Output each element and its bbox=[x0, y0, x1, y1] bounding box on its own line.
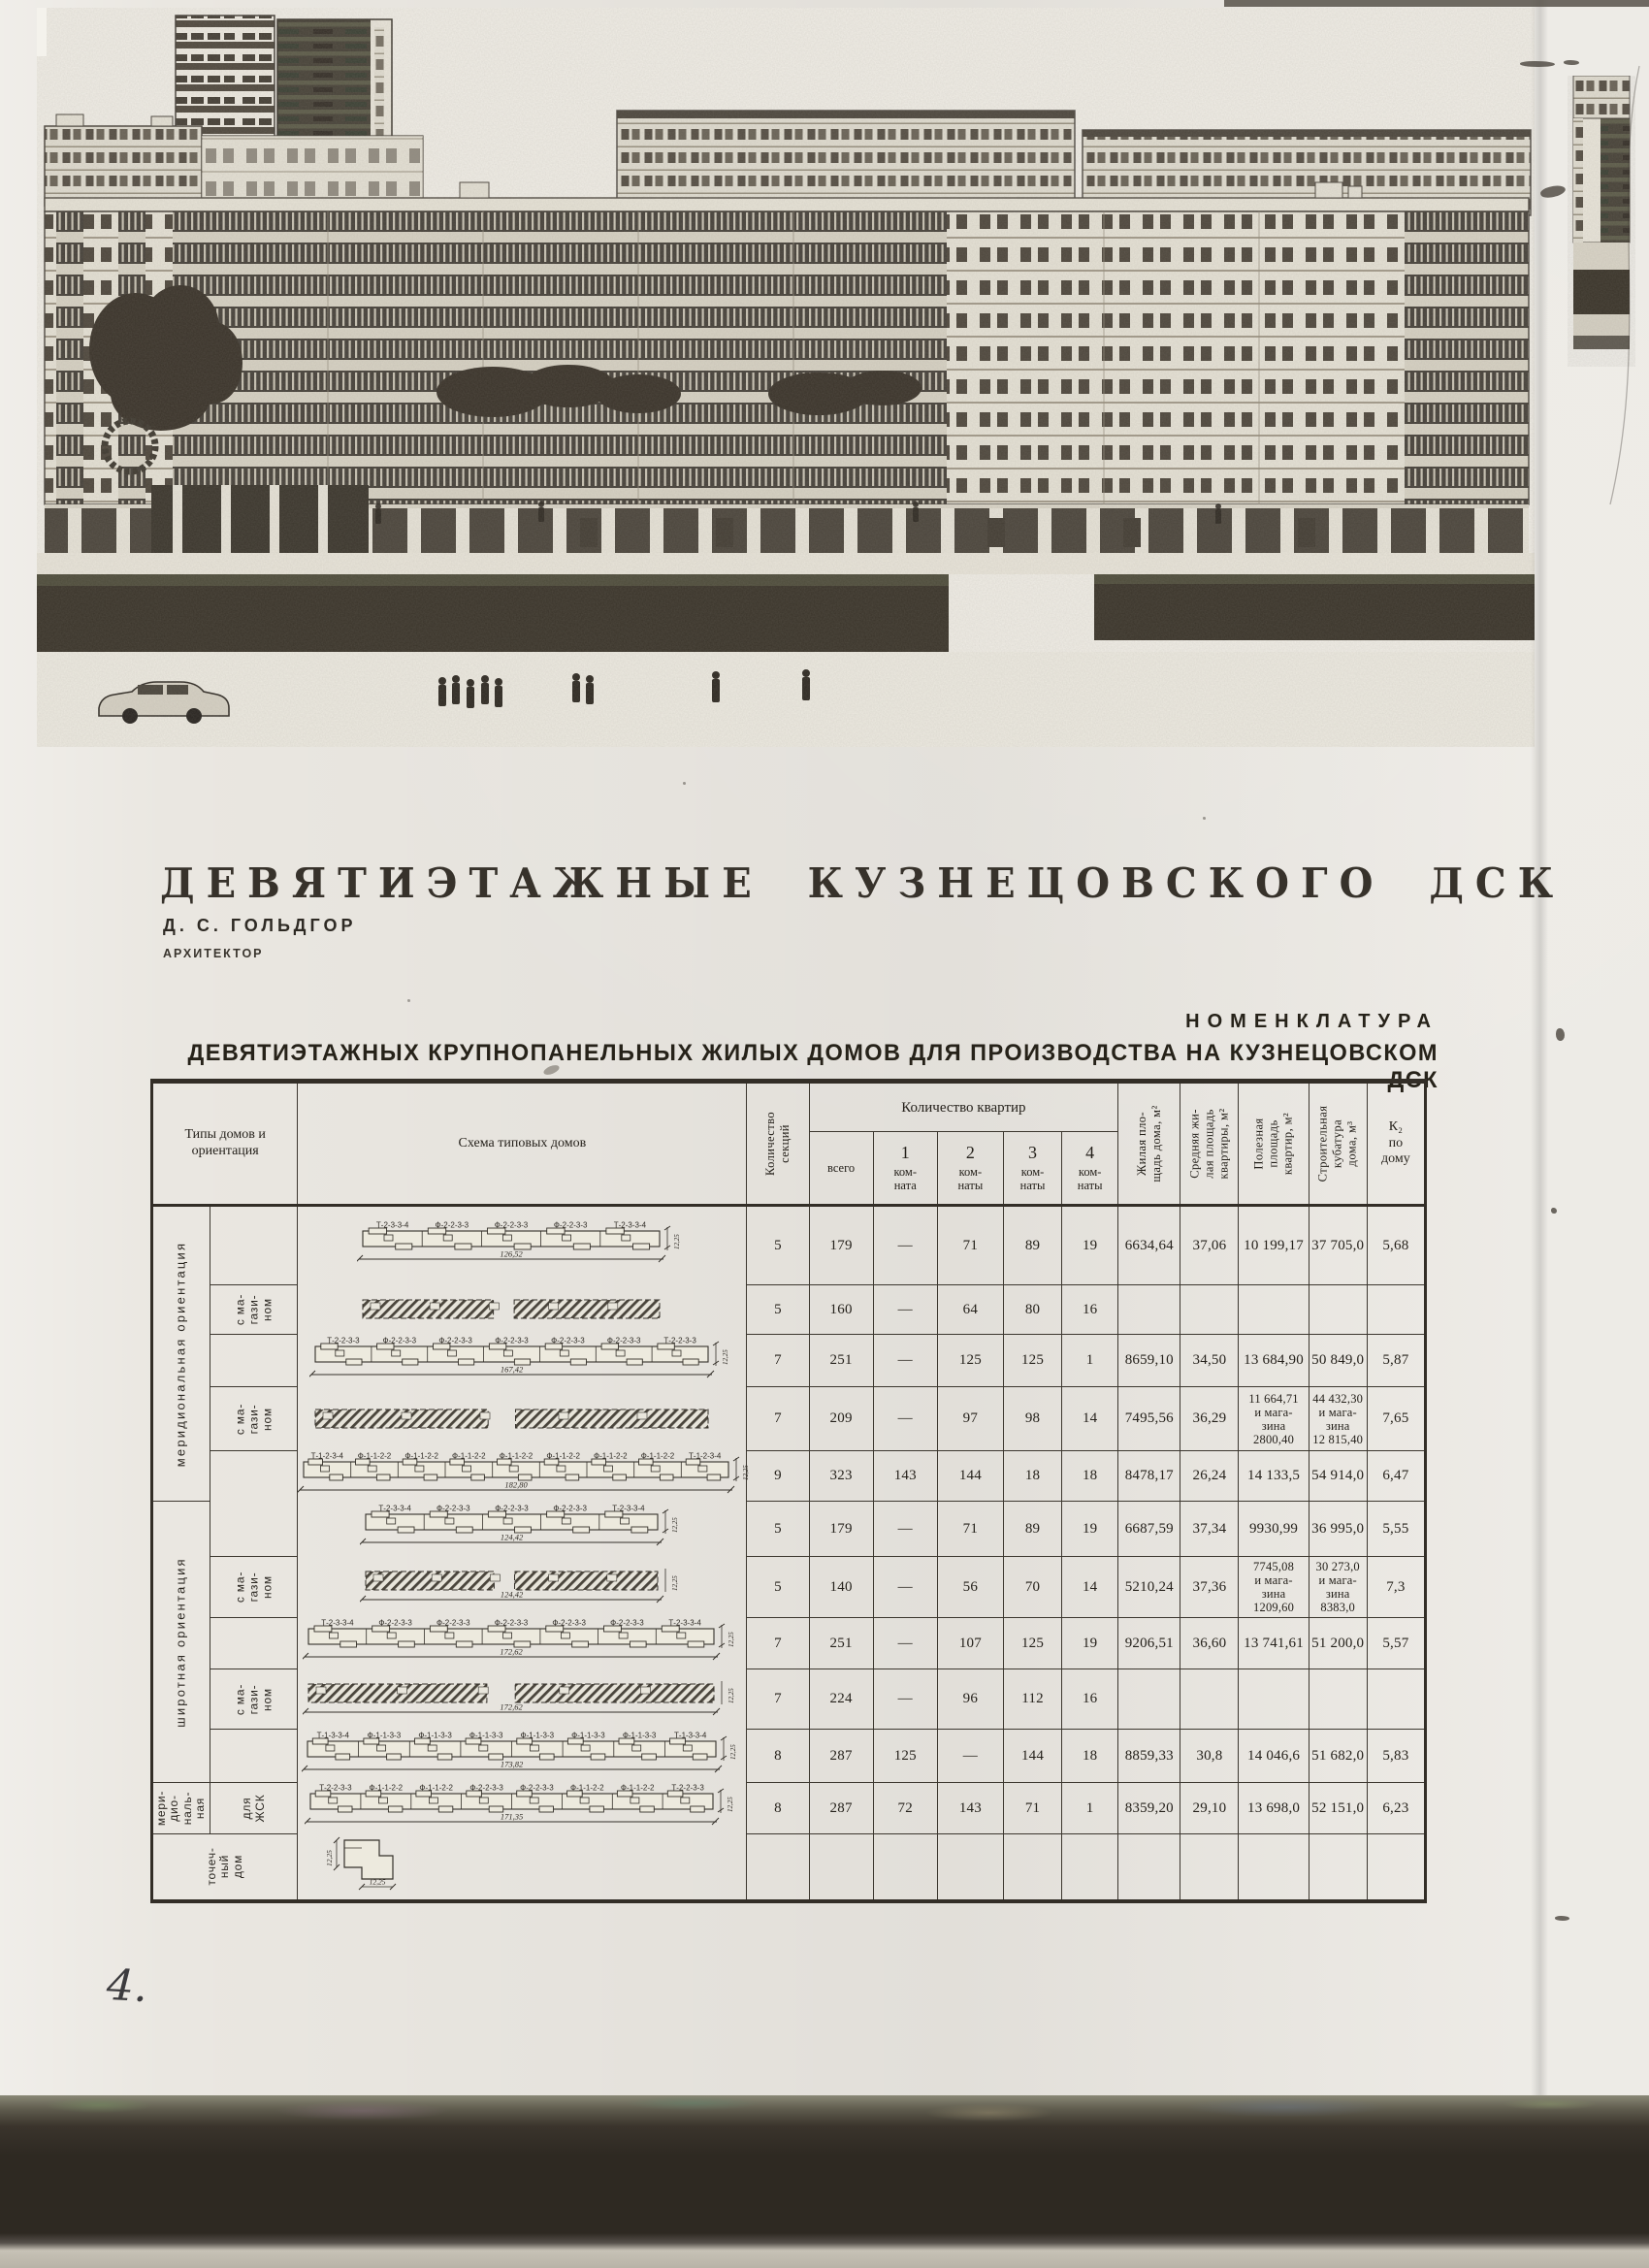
svg-text:12,25: 12,25 bbox=[742, 1464, 750, 1479]
cell-total: 209 bbox=[809, 1387, 873, 1451]
cell-k2-coefficient: 5,83 bbox=[1367, 1730, 1425, 1783]
cell-sections: 5 bbox=[747, 1502, 809, 1557]
cell-sections: 7 bbox=[747, 1618, 809, 1669]
svg-text:12,25: 12,25 bbox=[673, 1234, 681, 1249]
svg-text:12,25: 12,25 bbox=[727, 1687, 735, 1702]
nomenclature-heading: НОМЕНКЛАТУРА bbox=[1185, 1011, 1439, 1033]
svg-text:12,25: 12,25 bbox=[671, 1517, 679, 1533]
table-row: с ма- гази- ном5160—648016 bbox=[152, 1285, 1426, 1335]
cell-four-rooms: 19 bbox=[1062, 1206, 1118, 1285]
cell-building-volume: 36 995,0 bbox=[1309, 1502, 1367, 1557]
dust-dot bbox=[683, 782, 686, 785]
svg-text:126,52: 126,52 bbox=[501, 1249, 524, 1259]
cell-living-area bbox=[1118, 1834, 1180, 1901]
cell-useful-area: 11 664,71 и мага- зина 2800,40 bbox=[1239, 1387, 1309, 1451]
cell-sections bbox=[747, 1834, 809, 1901]
cell-building-volume bbox=[1309, 1834, 1367, 1901]
typical-house-plan-scheme: Т-1-3-3-4Ф-1-1-3-3Ф-1-1-3-3Ф-1-1-3-3Ф-1-… bbox=[302, 1731, 743, 1776]
point-house-scheme: 12,2512,25 bbox=[311, 1834, 428, 1895]
cell-avg-living-area: 34,50 bbox=[1180, 1335, 1239, 1387]
subtype-empty bbox=[210, 1335, 298, 1387]
scheme-cell: 172,6212,25 bbox=[298, 1669, 747, 1730]
cell-total: 287 bbox=[809, 1730, 873, 1783]
scheme-cell: Т-1-3-3-4Ф-1-1-3-3Ф-1-1-3-3Ф-1-1-3-3Ф-1-… bbox=[298, 1730, 747, 1783]
scheme-cell: Т-1-2-3-4Ф-1-1-2-2Ф-1-1-2-2Ф-1-1-2-2Ф-1-… bbox=[298, 1451, 747, 1502]
nomenclature-table: Типы домов и ориентация Схема типовых до… bbox=[150, 1079, 1427, 1903]
cell-three-rooms: 125 bbox=[1003, 1618, 1061, 1669]
svg-text:172,62: 172,62 bbox=[501, 1701, 524, 1711]
cell-two-rooms: — bbox=[937, 1730, 1003, 1783]
author-role: АРХИТЕКТОР bbox=[163, 947, 264, 960]
cell-four-rooms: 19 bbox=[1062, 1618, 1118, 1669]
scheme-cell: 124,4212,25 bbox=[298, 1557, 747, 1618]
cell-living-area: 5210,24 bbox=[1118, 1557, 1180, 1618]
cell-three-rooms: 98 bbox=[1003, 1387, 1061, 1451]
cell-four-rooms: 1 bbox=[1062, 1335, 1118, 1387]
scan-hair-artifact bbox=[1564, 58, 1649, 514]
cell-living-area: 8478,17 bbox=[1118, 1451, 1180, 1502]
cell-k2-coefficient bbox=[1367, 1834, 1425, 1901]
col-header-volume: Строительная кубатура дома, м³ bbox=[1309, 1082, 1367, 1206]
cell-k2-coefficient: 5,87 bbox=[1367, 1335, 1425, 1387]
author-name: Д. С. ГОЛЬДГОР bbox=[163, 916, 356, 936]
typical-house-plan-scheme: Т-2-3-3-4Ф-2-2-3-3Ф-2-2-3-3Ф-2-2-3-3Ф-2-… bbox=[303, 1618, 741, 1664]
table-row: точеч- ный дом12,2512,25 bbox=[152, 1834, 1426, 1901]
subtype-empty bbox=[210, 1451, 298, 1502]
typical-house-plan-scheme: Т-2-3-3-4Ф-2-2-3-3Ф-2-2-3-3Ф-2-2-3-3Т-2-… bbox=[357, 1220, 687, 1266]
cell-avg-living-area bbox=[1180, 1834, 1239, 1901]
shop-variant-hatched-scheme: 124,4212,25 bbox=[360, 1563, 685, 1606]
cell-sections: 7 bbox=[747, 1335, 809, 1387]
cell-four-rooms: 16 bbox=[1062, 1285, 1118, 1335]
cell-useful-area bbox=[1239, 1669, 1309, 1730]
scheme-cell: Т-2-3-3-4Ф-2-2-3-3Ф-2-2-3-3Ф-2-2-3-3Т-2-… bbox=[298, 1502, 747, 1557]
cell-one-room: 143 bbox=[873, 1451, 937, 1502]
cell-three-rooms: 18 bbox=[1003, 1451, 1061, 1502]
ink-speck bbox=[1555, 1916, 1569, 1921]
svg-text:171,35: 171,35 bbox=[501, 1812, 523, 1822]
cell-total: 251 bbox=[809, 1335, 873, 1387]
cell-one-room: 72 bbox=[873, 1783, 937, 1834]
cell-k2-coefficient: 5,55 bbox=[1367, 1502, 1425, 1557]
table-row: с ма- гази- ном7209—9798147495,5636,2911… bbox=[152, 1387, 1426, 1451]
svg-text:182,80: 182,80 bbox=[505, 1479, 529, 1489]
subtype-empty bbox=[210, 1618, 298, 1669]
subtype-empty bbox=[210, 1502, 298, 1557]
cell-avg-living-area: 29,10 bbox=[1180, 1783, 1239, 1834]
cell-avg-living-area bbox=[1180, 1285, 1239, 1335]
cell-living-area bbox=[1118, 1285, 1180, 1335]
cell-useful-area bbox=[1239, 1834, 1309, 1901]
cell-k2-coefficient: 5,68 bbox=[1367, 1206, 1425, 1285]
scheme-cell: Т-2-3-3-4Ф-2-2-3-3Ф-2-2-3-3Ф-2-2-3-3Т-2-… bbox=[298, 1206, 747, 1285]
cell-three-rooms: 112 bbox=[1003, 1669, 1061, 1730]
table-row: Т-1-2-3-4Ф-1-1-2-2Ф-1-1-2-2Ф-1-1-2-2Ф-1-… bbox=[152, 1451, 1426, 1502]
cell-avg-living-area: 37,34 bbox=[1180, 1502, 1239, 1557]
cell-two-rooms: 125 bbox=[937, 1335, 1003, 1387]
svg-text:12,25: 12,25 bbox=[727, 1797, 734, 1812]
cell-useful-area: 13 698,0 bbox=[1239, 1783, 1309, 1834]
cell-living-area: 8659,10 bbox=[1118, 1335, 1180, 1387]
cell-building-volume: 50 849,0 bbox=[1309, 1335, 1367, 1387]
cell-two-rooms: 71 bbox=[937, 1502, 1003, 1557]
cell-total bbox=[809, 1834, 873, 1901]
col-header-2-rooms: 2ком-наты bbox=[937, 1132, 1003, 1206]
col-header-types: Типы домов и ориентация bbox=[152, 1082, 298, 1206]
dust-dot bbox=[1203, 817, 1206, 820]
cell-four-rooms: 1 bbox=[1062, 1783, 1118, 1834]
cell-k2-coefficient: 7,3 bbox=[1367, 1557, 1425, 1618]
table-row: широтная ориентацияТ-2-3-3-4Ф-2-2-3-3Ф-2… bbox=[152, 1502, 1426, 1557]
cell-sections: 8 bbox=[747, 1730, 809, 1783]
cell-total: 251 bbox=[809, 1618, 873, 1669]
col-header-useful-area: Полезная площадь квартир, м² bbox=[1239, 1082, 1309, 1206]
cell-one-room: — bbox=[873, 1669, 937, 1730]
cell-four-rooms: 14 bbox=[1062, 1387, 1118, 1451]
cell-four-rooms: 18 bbox=[1062, 1451, 1118, 1502]
col-header-1-room: 1ком-ната bbox=[873, 1132, 937, 1206]
cell-three-rooms bbox=[1003, 1834, 1061, 1901]
svg-text:167,42: 167,42 bbox=[501, 1364, 524, 1374]
cell-sections: 7 bbox=[747, 1387, 809, 1451]
cell-building-volume: 51 682,0 bbox=[1309, 1730, 1367, 1783]
cell-useful-area: 13 684,90 bbox=[1239, 1335, 1309, 1387]
cell-building-volume: 52 151,0 bbox=[1309, 1783, 1367, 1834]
cell-k2-coefficient bbox=[1367, 1669, 1425, 1730]
subtype-label: с ма- гази- ном bbox=[210, 1669, 298, 1730]
cell-building-volume: 37 705,0 bbox=[1309, 1206, 1367, 1285]
orientation-group-label: точеч- ный дом bbox=[152, 1834, 298, 1901]
svg-text:12,25: 12,25 bbox=[729, 1744, 737, 1760]
cell-total: 179 bbox=[809, 1502, 873, 1557]
cell-living-area: 8359,20 bbox=[1118, 1783, 1180, 1834]
svg-text:172,62: 172,62 bbox=[501, 1647, 524, 1657]
col-header-total: всего bbox=[809, 1132, 873, 1206]
cell-building-volume bbox=[1309, 1285, 1367, 1335]
shop-variant-hatched-scheme bbox=[309, 1401, 735, 1433]
cell-sections: 8 bbox=[747, 1783, 809, 1834]
cell-building-volume: 54 914,0 bbox=[1309, 1451, 1367, 1502]
cell-total: 287 bbox=[809, 1783, 873, 1834]
table-row: Т-1-3-3-4Ф-1-1-3-3Ф-1-1-3-3Ф-1-1-3-3Ф-1-… bbox=[152, 1730, 1426, 1783]
typical-house-plan-scheme: Т-2-2-3-3Ф-2-2-3-3Ф-2-2-3-3Ф-2-2-3-3Ф-2-… bbox=[309, 1336, 735, 1381]
svg-text:12,25: 12,25 bbox=[722, 1348, 729, 1364]
svg-text:124,42: 124,42 bbox=[501, 1590, 524, 1600]
cell-total: 323 bbox=[809, 1451, 873, 1502]
table-row: Т-2-2-3-3Ф-2-2-3-3Ф-2-2-3-3Ф-2-2-3-3Ф-2-… bbox=[152, 1335, 1426, 1387]
cell-one-room bbox=[873, 1834, 937, 1901]
svg-text:124,42: 124,42 bbox=[501, 1533, 524, 1542]
cell-four-rooms: 18 bbox=[1062, 1730, 1118, 1783]
subtype-label: с ма- гази- ном bbox=[210, 1557, 298, 1618]
subtype-label: с ма- гази- ном bbox=[210, 1285, 298, 1335]
cell-total: 224 bbox=[809, 1669, 873, 1730]
cell-one-room: — bbox=[873, 1335, 937, 1387]
svg-text:12,25: 12,25 bbox=[727, 1632, 735, 1647]
table-row: с ма- гази- ном124,4212,255140—567014521… bbox=[152, 1557, 1426, 1618]
cell-total: 140 bbox=[809, 1557, 873, 1618]
cell-four-rooms: 14 bbox=[1062, 1557, 1118, 1618]
cell-two-rooms: 97 bbox=[937, 1387, 1003, 1451]
col-header-k2: К₂ по дому bbox=[1367, 1082, 1425, 1206]
cell-three-rooms: 70 bbox=[1003, 1557, 1061, 1618]
cell-two-rooms: 143 bbox=[937, 1783, 1003, 1834]
cell-four-rooms bbox=[1062, 1834, 1118, 1901]
cell-useful-area: 14 133,5 bbox=[1239, 1451, 1309, 1502]
subtype-empty bbox=[210, 1206, 298, 1285]
cell-four-rooms: 19 bbox=[1062, 1502, 1118, 1557]
cell-three-rooms: 89 bbox=[1003, 1206, 1061, 1285]
cell-one-room: — bbox=[873, 1387, 937, 1451]
cell-two-rooms: 56 bbox=[937, 1557, 1003, 1618]
cell-living-area bbox=[1118, 1669, 1180, 1730]
subtype-label: для ЖСК bbox=[210, 1783, 298, 1834]
scheme-cell bbox=[298, 1285, 747, 1335]
cell-useful-area: 10 199,17 bbox=[1239, 1206, 1309, 1285]
cell-k2-coefficient: 6,23 bbox=[1367, 1783, 1425, 1834]
cell-k2-coefficient: 6,47 bbox=[1367, 1451, 1425, 1502]
cell-useful-area: 9930,99 bbox=[1239, 1502, 1309, 1557]
cell-one-room: 125 bbox=[873, 1730, 937, 1783]
handwritten-page-number: 4. bbox=[106, 1960, 149, 2012]
cell-avg-living-area: 30,8 bbox=[1180, 1730, 1239, 1783]
cell-one-room: — bbox=[873, 1557, 937, 1618]
cell-living-area: 9206,51 bbox=[1118, 1618, 1180, 1669]
cell-two-rooms: 144 bbox=[937, 1451, 1003, 1502]
typical-house-plan-scheme: Т-1-2-3-4Ф-1-1-2-2Ф-1-1-2-2Ф-1-1-2-2Ф-1-… bbox=[298, 1451, 756, 1497]
scheme-cell: Т-2-2-3-3Ф-1-1-2-2Ф-1-1-2-2Ф-2-2-3-3Ф-2-… bbox=[298, 1783, 747, 1834]
scheme-cell: 12,2512,25 bbox=[298, 1834, 747, 1901]
cell-living-area: 8859,33 bbox=[1118, 1730, 1180, 1783]
cell-living-area: 6634,64 bbox=[1118, 1206, 1180, 1285]
dust-dot bbox=[407, 999, 410, 1002]
cell-sections: 7 bbox=[747, 1669, 809, 1730]
building-rendering-image bbox=[37, 8, 1535, 747]
cell-three-rooms: 125 bbox=[1003, 1335, 1061, 1387]
svg-text:173,82: 173,82 bbox=[501, 1760, 524, 1769]
cell-three-rooms: 89 bbox=[1003, 1502, 1061, 1557]
col-header-3-rooms: 3ком-наты bbox=[1003, 1132, 1061, 1206]
cell-sections: 5 bbox=[747, 1206, 809, 1285]
scheme-cell: Т-2-2-3-3Ф-2-2-3-3Ф-2-2-3-3Ф-2-2-3-3Ф-2-… bbox=[298, 1335, 747, 1387]
cell-sections: 5 bbox=[747, 1557, 809, 1618]
svg-text:12,25: 12,25 bbox=[370, 1877, 386, 1886]
scheme-cell: Т-2-3-3-4Ф-2-2-3-3Ф-2-2-3-3Ф-2-2-3-3Ф-2-… bbox=[298, 1618, 747, 1669]
col-header-scheme: Схема типовых домов bbox=[298, 1082, 747, 1206]
cell-k2-coefficient: 5,57 bbox=[1367, 1618, 1425, 1669]
scanner-dark-band bbox=[0, 2095, 1649, 2268]
orientation-group-label: широтная ориентация bbox=[152, 1502, 210, 1783]
cell-useful-area: 7745,08 и мага- зина 1209,60 bbox=[1239, 1557, 1309, 1618]
table-row: Т-2-3-3-4Ф-2-2-3-3Ф-2-2-3-3Ф-2-2-3-3Ф-2-… bbox=[152, 1618, 1426, 1669]
scan-top-edge bbox=[1224, 0, 1649, 7]
col-header-living-area: Жилая пло- щадь дома, м² bbox=[1118, 1082, 1180, 1206]
cell-useful-area: 13 741,61 bbox=[1239, 1618, 1309, 1669]
halftone-grain bbox=[37, 8, 1535, 747]
cell-one-room: — bbox=[873, 1618, 937, 1669]
ink-speck bbox=[1551, 1208, 1557, 1214]
cell-total: 179 bbox=[809, 1206, 873, 1285]
cell-avg-living-area bbox=[1180, 1669, 1239, 1730]
cell-living-area: 7495,56 bbox=[1118, 1387, 1180, 1451]
cell-avg-living-area: 36,29 bbox=[1180, 1387, 1239, 1451]
cell-two-rooms: 71 bbox=[937, 1206, 1003, 1285]
cell-two-rooms: 64 bbox=[937, 1285, 1003, 1335]
page-title: ДЕВЯТИЭТАЖНЫЕ КУЗНЕЦОВСКОГО ДСК bbox=[160, 859, 1450, 908]
cell-k2-coefficient bbox=[1367, 1285, 1425, 1335]
cell-one-room: — bbox=[873, 1285, 937, 1335]
cell-avg-living-area: 36,60 bbox=[1180, 1618, 1239, 1669]
cell-sections: 5 bbox=[747, 1285, 809, 1335]
scheme-cell bbox=[298, 1387, 747, 1451]
cell-two-rooms: 96 bbox=[937, 1669, 1003, 1730]
page-fold-shadow bbox=[1531, 0, 1548, 2268]
table-row: с ма- гази- ном172,6212,257224—9611216 bbox=[152, 1669, 1426, 1730]
cell-building-volume bbox=[1309, 1669, 1367, 1730]
ink-speck bbox=[1564, 60, 1579, 65]
svg-text:12,25: 12,25 bbox=[671, 1575, 679, 1591]
cell-one-room: — bbox=[873, 1502, 937, 1557]
cell-building-volume: 51 200,0 bbox=[1309, 1618, 1367, 1669]
cell-living-area: 6687,59 bbox=[1118, 1502, 1180, 1557]
col-header-avg-area: Средняя жи- лая площадь квартиры, м² bbox=[1180, 1082, 1239, 1206]
cell-three-rooms: 144 bbox=[1003, 1730, 1061, 1783]
cell-four-rooms: 16 bbox=[1062, 1669, 1118, 1730]
cell-two-rooms bbox=[937, 1834, 1003, 1901]
cell-useful-area: 14 046,6 bbox=[1239, 1730, 1309, 1783]
ink-speck bbox=[1556, 1028, 1565, 1041]
cell-one-room: — bbox=[873, 1206, 937, 1285]
col-header-apartments-group: Количество квартир bbox=[809, 1082, 1118, 1132]
ink-speck bbox=[1520, 61, 1555, 67]
shop-variant-hatched-scheme: 172,6212,25 bbox=[303, 1675, 741, 1719]
cell-avg-living-area: 26,24 bbox=[1180, 1451, 1239, 1502]
table-row: мери- дио- наль- наядля ЖСКТ-2-2-3-3Ф-1-… bbox=[152, 1783, 1426, 1834]
typical-house-plan-scheme: Т-2-2-3-3Ф-1-1-2-2Ф-1-1-2-2Ф-2-2-3-3Ф-2-… bbox=[305, 1783, 740, 1829]
orientation-group-label: мери- дио- наль- ная bbox=[152, 1783, 210, 1834]
table-row: меридиональная ориентацияТ-2-3-3-4Ф-2-2-… bbox=[152, 1206, 1426, 1285]
cell-two-rooms: 107 bbox=[937, 1618, 1003, 1669]
orientation-group-label: меридиональная ориентация bbox=[152, 1206, 210, 1502]
cell-building-volume: 30 273,0 и мага- зина 8383,0 bbox=[1309, 1557, 1367, 1618]
typical-house-plan-scheme: Т-2-3-3-4Ф-2-2-3-3Ф-2-2-3-3Ф-2-2-3-3Т-2-… bbox=[360, 1504, 685, 1549]
svg-text:12,25: 12,25 bbox=[325, 1849, 334, 1865]
cell-avg-living-area: 37,06 bbox=[1180, 1206, 1239, 1285]
cell-sections: 9 bbox=[747, 1451, 809, 1502]
cell-three-rooms: 71 bbox=[1003, 1783, 1061, 1834]
col-header-sections: Количество секций bbox=[747, 1082, 809, 1206]
cell-avg-living-area: 37,36 bbox=[1180, 1557, 1239, 1618]
cell-three-rooms: 80 bbox=[1003, 1285, 1061, 1335]
scanned-page: ДЕВЯТИЭТАЖНЫЕ КУЗНЕЦОВСКОГО ДСК Д. С. ГО… bbox=[0, 0, 1649, 2268]
col-header-4-rooms: 4ком-наты bbox=[1062, 1132, 1118, 1206]
cell-building-volume: 44 432,30 и мага- зина 12 815,40 bbox=[1309, 1387, 1367, 1451]
cell-total: 160 bbox=[809, 1285, 873, 1335]
cell-k2-coefficient: 7,65 bbox=[1367, 1387, 1425, 1451]
subtype-empty bbox=[210, 1730, 298, 1783]
shop-variant-hatched-scheme bbox=[357, 1291, 687, 1323]
cell-useful-area bbox=[1239, 1285, 1309, 1335]
subtype-label: с ма- гази- ном bbox=[210, 1387, 298, 1451]
